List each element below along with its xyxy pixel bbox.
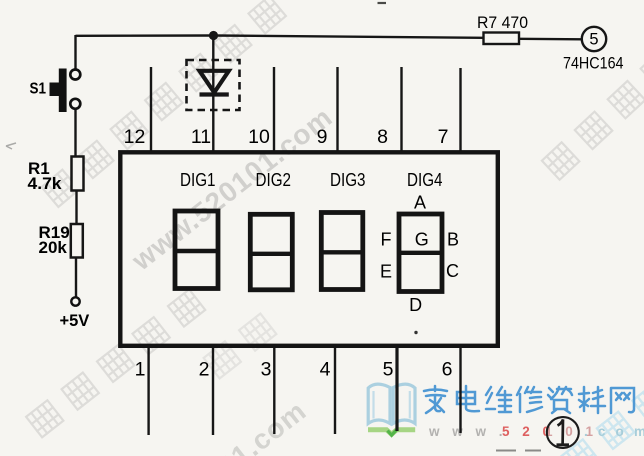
svg-text:S1: S1 [30, 81, 47, 98]
svg-text:10: 10 [248, 126, 270, 148]
svg-text:+5V: +5V [60, 312, 90, 330]
svg-text:D: D [409, 295, 422, 315]
svg-text:A: A [414, 193, 426, 213]
svg-text:6: 6 [442, 359, 453, 381]
svg-text:C: C [446, 261, 459, 281]
svg-text:2: 2 [199, 359, 210, 381]
svg-text:DIG1: DIG1 [180, 170, 216, 190]
svg-text:www.520101.com: www.520101.com [125, 101, 338, 277]
svg-text:11: 11 [191, 126, 211, 148]
svg-text:. c o m: . c o m [584, 424, 644, 439]
svg-text:B: B [447, 230, 459, 250]
svg-text:DIG2: DIG2 [256, 170, 292, 190]
svg-text:01.com: 01.com [212, 395, 312, 456]
svg-text:20k: 20k [39, 238, 68, 257]
svg-text:5: 5 [589, 31, 598, 49]
svg-text:12: 12 [124, 126, 146, 148]
svg-text:DIG4: DIG4 [407, 170, 443, 190]
svg-text:DIG3: DIG3 [330, 170, 366, 190]
svg-text:4: 4 [320, 359, 331, 381]
svg-text:E: E [380, 262, 392, 282]
svg-text:G: G [415, 230, 429, 250]
svg-text:9: 9 [317, 126, 328, 148]
svg-text:4.7k: 4.7k [28, 174, 63, 193]
svg-text:F: F [381, 230, 392, 250]
svg-text:74HC164: 74HC164 [563, 55, 624, 73]
svg-text:8: 8 [377, 126, 388, 148]
svg-text:5: 5 [383, 359, 394, 381]
svg-text:3: 3 [261, 359, 272, 381]
svg-text:7: 7 [438, 126, 449, 148]
svg-text:R7 470: R7 470 [477, 13, 528, 32]
svg-text:1: 1 [135, 359, 146, 381]
svg-text:w w w .: w w w . [428, 424, 507, 439]
